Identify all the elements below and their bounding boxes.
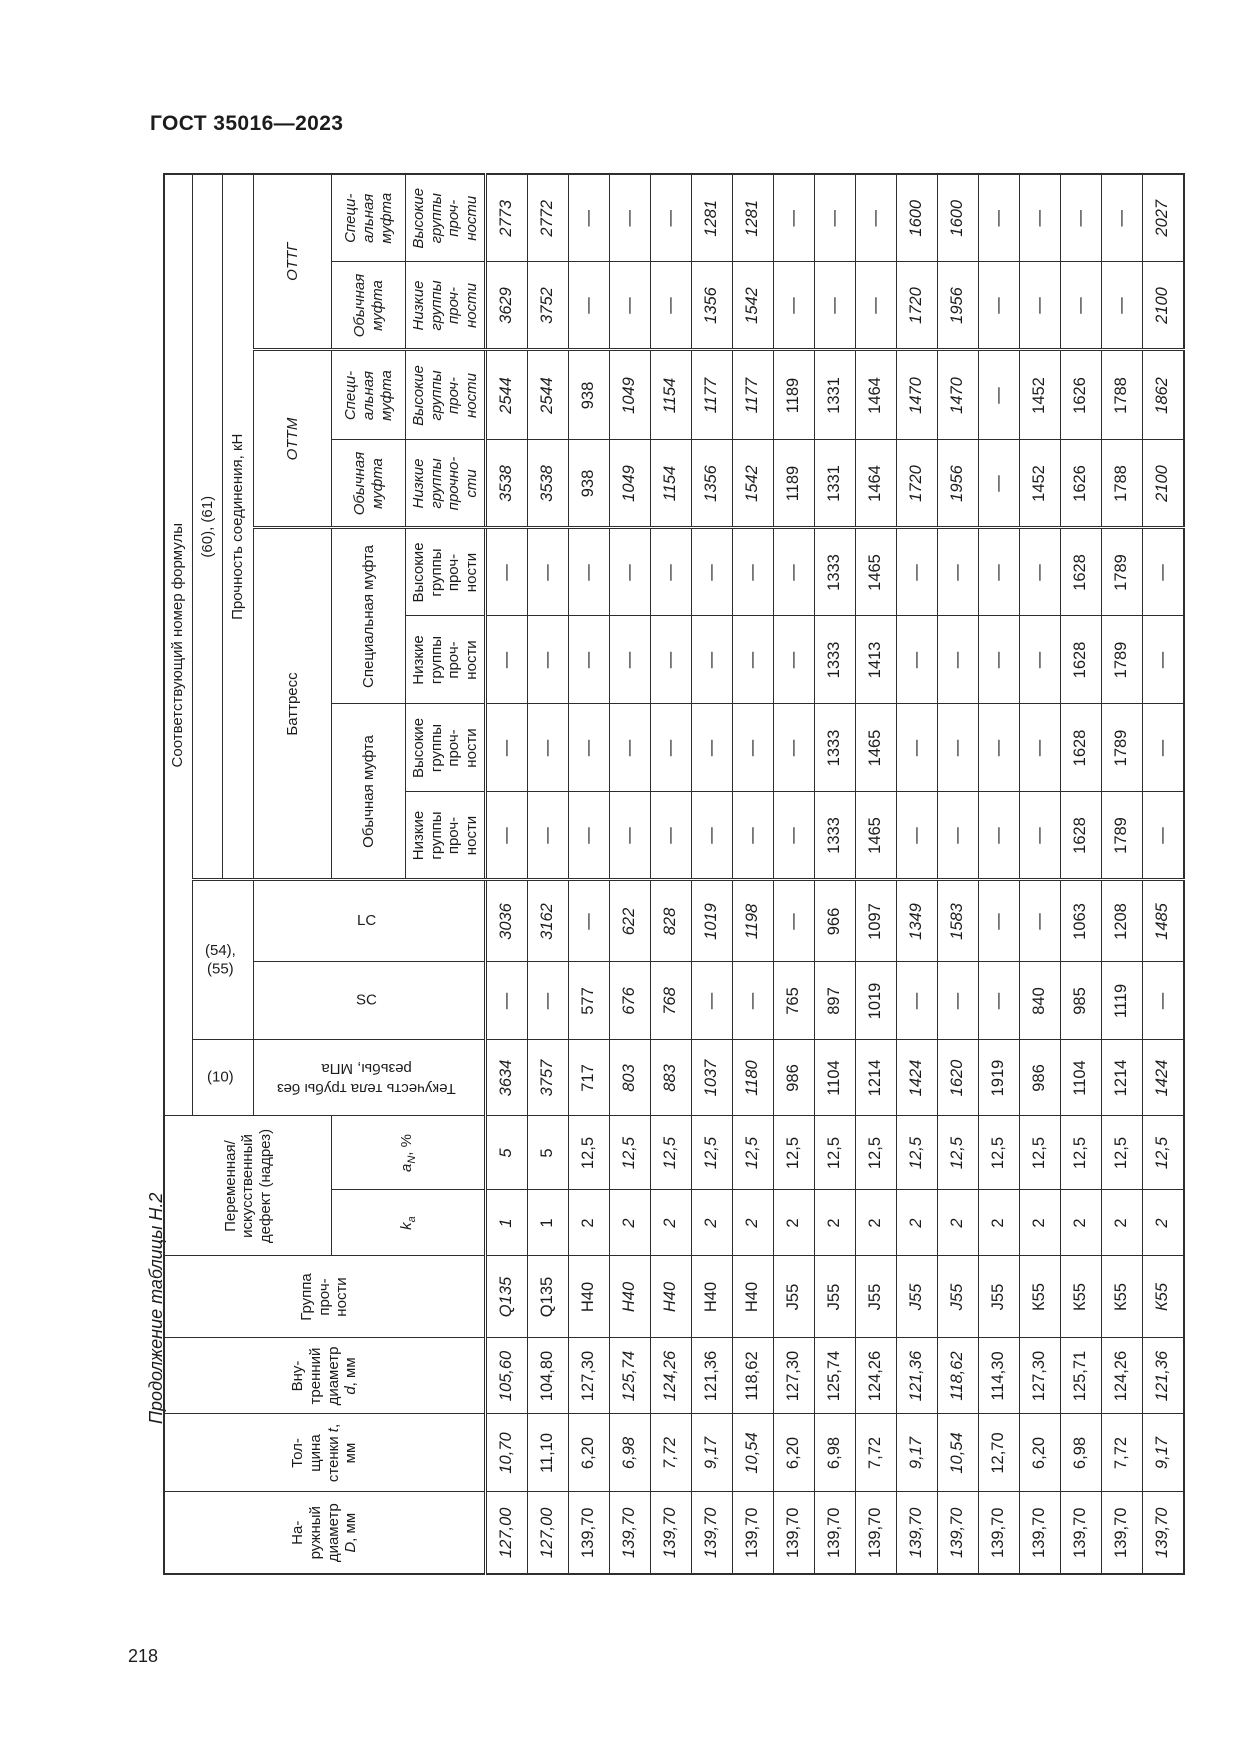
table-row: 139,709,17121,36К55212,51424—1485————210… [1143,174,1185,1574]
table-cell: — [774,174,815,262]
table-cell: — [1020,174,1061,262]
table-cell: 1789 [1102,528,1143,616]
table-cell: 12,5 [815,1116,856,1190]
table-cell: 139,70 [815,1492,856,1574]
table-cell: — [774,262,815,350]
table-cell: 6,98 [610,1414,651,1492]
table-cell: — [528,962,569,1040]
table-cell: 1424 [897,1040,938,1116]
table-cell: — [1020,528,1061,616]
table-cell: 105,60 [486,1338,528,1414]
table-cell: 3757 [528,1040,569,1116]
header-sc: SC [254,962,486,1040]
table-cell: 11,10 [528,1414,569,1492]
table-cell: 7,72 [856,1414,897,1492]
table-cell: 127,00 [528,1492,569,1574]
table-cell: 2 [774,1190,815,1256]
header-ottg-high: Высокие группы проч- ности [406,174,486,262]
table-cell: 12,5 [569,1116,610,1190]
table-cell: Н40 [569,1256,610,1338]
table-cell: 2544 [528,350,569,440]
table-cell: К55 [1061,1256,1102,1338]
table-cell: — [692,704,733,792]
table-cell: — [569,880,610,962]
table-cell: 1424 [1143,1040,1185,1116]
table-cell: — [528,704,569,792]
table-cell: 1019 [692,880,733,962]
table-cell: 1331 [815,440,856,528]
table-cell: — [569,174,610,262]
table-cell: J55 [938,1256,979,1338]
table-cell: — [569,616,610,704]
table-cell: — [774,528,815,616]
table-cell: — [569,704,610,792]
table-cell: 1349 [897,880,938,962]
header-ottm: ОТТМ [254,350,332,528]
table-cell: 1628 [1061,792,1102,880]
table-row: 139,707,72124,26J55212,51214101910971465… [856,174,897,1574]
table-cell: 139,70 [610,1492,651,1574]
table-cell: 127,00 [486,1492,528,1574]
table-cell: — [733,792,774,880]
table-cell: 1464 [856,440,897,528]
table-cell: 2 [1102,1190,1143,1256]
table-cell: 1542 [733,440,774,528]
table-cell: — [897,962,938,1040]
header-buttress-special-low: Низкие группы проч- ности [406,616,486,704]
table-cell: 139,70 [692,1492,733,1574]
table-cell: 2 [610,1190,651,1256]
table-cell: 1628 [1061,616,1102,704]
table-cell: 2 [569,1190,610,1256]
table-cell: — [938,616,979,704]
table-cell: — [979,262,1020,350]
table-cell: 1214 [856,1040,897,1116]
table-cell: 139,70 [979,1492,1020,1574]
header-ottg: ОТТГ [254,174,332,350]
table-cell: 5 [528,1116,569,1190]
table-cell: — [610,262,651,350]
table-cell: 2 [856,1190,897,1256]
pipe-strength-table: На- ружный диаметр D, мм Тол- щина стенк… [163,173,1185,1575]
table-cell: 2773 [486,174,528,262]
table-cell: J55 [774,1256,815,1338]
table-cell: — [979,440,1020,528]
table-cell: 12,5 [1102,1116,1143,1190]
table-cell: 1465 [856,792,897,880]
table-cell: — [897,528,938,616]
table-cell: — [528,616,569,704]
table-cell: 1333 [815,616,856,704]
table-cell: — [651,174,692,262]
table-cell: 1470 [938,350,979,440]
table-cell: 139,70 [1143,1492,1185,1574]
table-cell: 1177 [692,350,733,440]
table-cell: — [938,792,979,880]
header-ottm-low: Низкие группы прочно- сти [406,440,486,528]
table-cell: 2 [815,1190,856,1256]
table-cell: 7,72 [651,1414,692,1492]
table-cell: 1333 [815,528,856,616]
table-cell: 828 [651,880,692,962]
table-cell: 12,5 [897,1116,938,1190]
table-cell: — [979,174,1020,262]
table-cell: 1 [486,1190,528,1256]
table-cell: — [610,616,651,704]
table-cell: — [610,528,651,616]
table-cell: Н40 [610,1256,651,1338]
table-cell: 124,26 [856,1338,897,1414]
header-ottg-low: Низкие группы проч- ности [406,262,486,350]
table-cell: Н40 [733,1256,774,1338]
header-formula-number: Соответствующий номер формулы [164,174,192,1116]
table-cell: 2 [692,1190,733,1256]
table-cell: Q135 [486,1256,528,1338]
table-cell: 125,74 [610,1338,651,1414]
table-cell: 12,5 [938,1116,979,1190]
table-cell: 104,80 [528,1338,569,1414]
table-cell: 6,98 [815,1414,856,1492]
table-cell: — [692,528,733,616]
document-standard-header: ГОСТ 35016—2023 [150,112,343,136]
table-cell: 9,17 [1143,1414,1185,1492]
symbol-D: D [342,1542,359,1553]
table-cell: 1789 [1102,792,1143,880]
table-cell: — [733,528,774,616]
table-cell: — [651,792,692,880]
header-wall-thickness: Тол- щина стенки t, мм [164,1414,486,1492]
table-cell: — [651,262,692,350]
table-cell: 12,5 [979,1116,1020,1190]
page-number: 218 [128,1646,158,1667]
header-buttress-regular-low: Низкие группы проч- ности [406,792,486,880]
table-cell: 2 [938,1190,979,1256]
table-cell: 1600 [938,174,979,262]
table-cell: — [897,792,938,880]
table-cell: 1154 [651,440,692,528]
table-cell: 2100 [1143,440,1185,528]
table-row: 139,706,98125,71К55212,51104985106316281… [1061,174,1102,1574]
table-cell: 803 [610,1040,651,1116]
header-ottm-regular-coupling: Обычная муфта [332,440,406,528]
table-cell: 121,36 [897,1338,938,1414]
table-cell: 139,70 [1102,1492,1143,1574]
table-cell: 840 [1020,962,1061,1040]
table-cell: 12,5 [651,1116,692,1190]
table-cell: 2 [1061,1190,1102,1256]
table-cell: — [979,616,1020,704]
table-cell: 3162 [528,880,569,962]
table-cell: — [979,962,1020,1040]
table-cell: 1788 [1102,350,1143,440]
table-cell: 139,70 [1020,1492,1061,1574]
table-cell: — [1143,792,1185,880]
table-cell: — [1061,262,1102,350]
table-cell: 6,98 [1061,1414,1102,1492]
header-outer-diameter: На- ружный диаметр D, мм [164,1492,486,1574]
table-cell: 6,20 [569,1414,610,1492]
table-cell: 1465 [856,528,897,616]
table-cell: — [733,704,774,792]
table-cell: — [610,174,651,262]
table-cell: 1104 [1061,1040,1102,1116]
header-formula-60-61: (60), (61) [192,174,223,880]
header-buttress-special-coupling: Специальная муфта [332,528,406,704]
table-cell: — [692,616,733,704]
header-buttress-regular-high: Высокие группы проч- ности [406,704,486,792]
table-cell: 3629 [486,262,528,350]
table-cell: 12,5 [1143,1116,1185,1190]
table-cell: — [1143,616,1185,704]
table-cell: — [1061,174,1102,262]
table-cell: 1119 [1102,962,1143,1040]
table-cell: 1 [528,1190,569,1256]
table-cell: 1620 [938,1040,979,1116]
table-cell: 765 [774,962,815,1040]
table-cell: К55 [1102,1256,1143,1338]
table-row: 139,706,20127,30К55212,5986840—————14521… [1020,174,1061,1574]
table-cell: 12,5 [610,1116,651,1190]
table-cell: 118,62 [733,1338,774,1414]
header-connection-strength: Прочность соединения, кН [223,174,254,880]
table-cell: 985 [1061,962,1102,1040]
header-formula-54-55: (54), (55) [192,880,254,1040]
table-cell: 127,30 [1020,1338,1061,1414]
table-cell: — [1020,880,1061,962]
table-cell: 1465 [856,704,897,792]
table-cell: 1628 [1061,704,1102,792]
header-ottm-special-coupling: Специ- альная муфта [332,350,406,440]
table-cell: — [1020,262,1061,350]
table-cell: 124,26 [1102,1338,1143,1414]
table-cell: Н40 [692,1256,733,1338]
table-cell: 1452 [1020,440,1061,528]
table-cell: 1019 [856,962,897,1040]
table-cell: — [1102,262,1143,350]
table-cell: 12,5 [856,1116,897,1190]
table-row: 139,7010,54118,62Н40212,51180—1198————15… [733,174,774,1574]
header-defect-group: Переменная/ искусственный дефект (надрез… [164,1116,332,1256]
table-cell: 1470 [897,350,938,440]
table-cell: 1452 [1020,350,1061,440]
table-cell: 768 [651,962,692,1040]
table-cell: К55 [1020,1256,1061,1338]
table-cell: 1180 [733,1040,774,1116]
header-buttress-special-high: Высокие группы проч- ности [406,528,486,616]
table-cell: 127,30 [569,1338,610,1414]
table-cell: — [486,704,528,792]
table-cell: — [569,528,610,616]
table-cell: — [856,174,897,262]
table-cell: — [651,528,692,616]
table-cell: 2027 [1143,174,1185,262]
table-cell: 1626 [1061,350,1102,440]
table-cell: 9,17 [897,1414,938,1492]
table-cell: 1198 [733,880,774,962]
table-cell: 118,62 [938,1338,979,1414]
table-cell: 139,70 [856,1492,897,1574]
table-cell: 1281 [733,174,774,262]
table-row: 139,7012,70114,30J55212,51919—————————— [979,174,1020,1574]
table-cell: 883 [651,1040,692,1116]
header-buttress-regular-coupling: Обычная муфта [332,704,406,880]
table-cell: 12,5 [1020,1116,1061,1190]
table-cell: — [1143,704,1185,792]
table-cell: 1956 [938,262,979,350]
table-cell: 1862 [1143,350,1185,440]
table-cell: — [815,174,856,262]
table-cell: 1208 [1102,880,1143,962]
table-cell: 3036 [486,880,528,962]
table-cell: 1788 [1102,440,1143,528]
table-cell: Q135 [528,1256,569,1338]
table-cell: 139,70 [774,1492,815,1574]
table-cell: 139,70 [651,1492,692,1574]
table-cell: К55 [1143,1256,1185,1338]
table-cell: 1214 [1102,1040,1143,1116]
table-cell: 125,74 [815,1338,856,1414]
table-cell: 1413 [856,616,897,704]
table-cell: 6,20 [774,1414,815,1492]
table-cell: 622 [610,880,651,962]
table-cell: 12,70 [979,1414,1020,1492]
table-cell: — [651,616,692,704]
table-row: 127,0011,10104,80Q135153757—3162————3538… [528,174,569,1574]
table-cell: — [1143,962,1185,1040]
table-cell: 966 [815,880,856,962]
table-cell: — [1020,792,1061,880]
table-cell: 577 [569,962,610,1040]
table-cell: 12,5 [733,1116,774,1190]
header-inner-diameter: Вну- тренний диаметр d, мм [164,1338,486,1414]
table-cell: 1049 [610,440,651,528]
table-cell: 6,20 [1020,1414,1061,1492]
table-cell: 125,71 [1061,1338,1102,1414]
table-cell: — [774,880,815,962]
table-cell: 1356 [692,440,733,528]
table-cell: — [938,962,979,1040]
table-cell: 10,54 [938,1414,979,1492]
table-cell: — [733,616,774,704]
table-cell: 10,70 [486,1414,528,1492]
table-cell: 1356 [692,262,733,350]
table-cell: 12,5 [1061,1116,1102,1190]
table-cell: 1104 [815,1040,856,1116]
table-cell: 1919 [979,1040,1020,1116]
table-cell: 1037 [692,1040,733,1116]
table-row: 139,709,17121,36Н40212,51037—1019————135… [692,174,733,1574]
table-cell: 127,30 [774,1338,815,1414]
table-cell: J55 [897,1256,938,1338]
table-cell: 938 [569,350,610,440]
table-cell: 1097 [856,880,897,962]
header-strength-grade: Группа проч- ности [164,1256,486,1338]
table-cell: J55 [856,1256,897,1338]
table-cell: — [774,616,815,704]
table-cell: — [938,528,979,616]
table-cell: Н40 [651,1256,692,1338]
table-cell: 1542 [733,262,774,350]
header-ottm-high: Высокие группы проч- ности [406,350,486,440]
table-cell: 139,70 [938,1492,979,1574]
table-cell: 12,5 [774,1116,815,1190]
table-cell: — [815,262,856,350]
table-cell: 2 [979,1190,1020,1256]
table-cell: — [486,528,528,616]
table-cell: 897 [815,962,856,1040]
table-cell: — [733,962,774,1040]
table-cell: — [938,704,979,792]
table-cell: — [692,962,733,1040]
table-cell: 938 [569,440,610,528]
table-cell: — [1020,704,1061,792]
table-cell: 3538 [528,440,569,528]
table-cell: 1189 [774,440,815,528]
table-cell: 1281 [692,174,733,262]
table-cell: 2544 [486,350,528,440]
table-cell: 1063 [1061,880,1102,962]
table-cell: 1049 [610,350,651,440]
table-cell: — [528,792,569,880]
table-cell: 1956 [938,440,979,528]
table-cell: — [651,704,692,792]
table-row: 127,0010,70105,60Q135153634—3036————3538… [486,174,528,1574]
table-cell: — [897,616,938,704]
table-cell: 1600 [897,174,938,262]
table-cell: — [1020,616,1061,704]
table-cell: 2772 [528,174,569,262]
table-row: 139,707,72124,26К55212,51214111912081789… [1102,174,1143,1574]
table-cell: 2 [733,1190,774,1256]
table-cell: 1628 [1061,528,1102,616]
table-cell: — [774,792,815,880]
table-cell: 1583 [938,880,979,962]
header-buttress: Баттресс [254,528,332,880]
table-cell: — [569,792,610,880]
table-cell: — [486,962,528,1040]
table-cell: 3752 [528,262,569,350]
table-cell: — [486,616,528,704]
table-row: 139,709,17121,36J55212,51424—1349————172… [897,174,938,1574]
table-cell: — [610,704,651,792]
table-cell: 676 [610,962,651,1040]
table-cell: 114,30 [979,1338,1020,1414]
table-cell: — [979,528,1020,616]
table-cell: 1154 [651,350,692,440]
table-cell: — [692,792,733,880]
table-row: 139,706,20127,30Н40212,5717577—————93893… [569,174,610,1574]
table-cell: — [569,262,610,350]
table-cell: 139,70 [897,1492,938,1574]
table-cell: 139,70 [733,1492,774,1574]
header-ottg-regular-coupling: Обычная муфта [332,262,406,350]
table-cell: 12,5 [692,1116,733,1190]
table-cell: 2 [1020,1190,1061,1256]
table-cell: 1464 [856,350,897,440]
table-cell: 717 [569,1040,610,1116]
table-cell: 1189 [774,350,815,440]
table-cell: 1333 [815,792,856,880]
table-cell: 121,36 [1143,1338,1185,1414]
table-cell: — [1143,528,1185,616]
table-cell: 1626 [1061,440,1102,528]
table-cell: — [528,528,569,616]
table-cell: — [897,704,938,792]
table-cell: 139,70 [1061,1492,1102,1574]
rotated-table-container: На- ружный диаметр D, мм Тол- щина стенк… [163,173,1185,1575]
header-ottg-special-coupling: Специ- альная муфта [332,174,406,262]
table-cell: 124,26 [651,1338,692,1414]
